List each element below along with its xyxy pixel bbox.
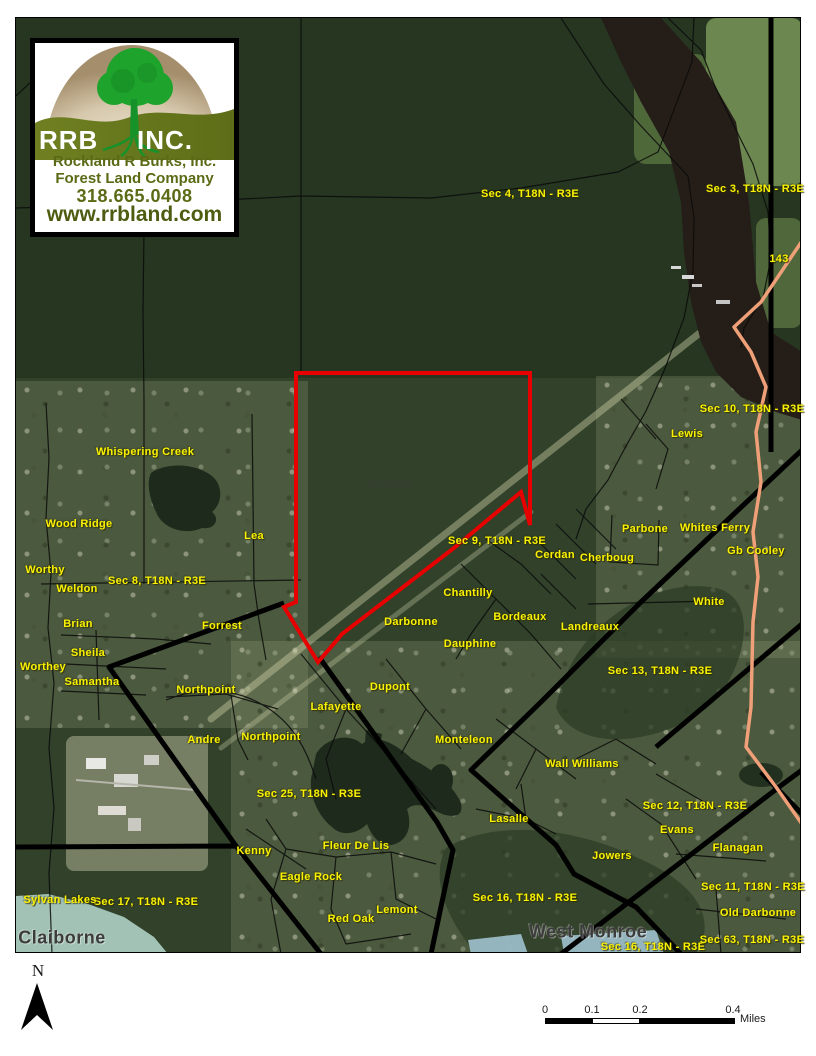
- logo-company-type: Forest Land Company: [35, 170, 234, 187]
- logo-abbr-rrb: RRB: [39, 125, 98, 156]
- scale-bar: 00.10.20.4 Miles: [540, 1004, 790, 1036]
- claiborne-water: [16, 894, 168, 953]
- north-arrow-glyph: [21, 983, 53, 1030]
- scale-bar-segments: [545, 1018, 735, 1024]
- property-boundary: [284, 373, 530, 662]
- wood-ridge-lake: [149, 465, 221, 531]
- forest-blobs: [440, 586, 744, 953]
- scale-segment-white: [592, 1018, 640, 1024]
- scale-segment-black: [545, 1018, 592, 1024]
- industrial-site: [66, 736, 208, 871]
- logo-company-name: Rockland R Burks, Inc.: [35, 153, 234, 170]
- scale-tick-label: 0.4: [725, 1004, 740, 1016]
- map-page: Sec 4, T18N - R3ESec 3, T18N - R3ESec 10…: [0, 0, 816, 1056]
- company-logo: RRB INC. Rockland R Burks, Inc. Forest L…: [30, 38, 239, 237]
- scale-unit: Miles: [740, 1013, 766, 1025]
- north-label: N: [32, 961, 44, 980]
- monteleon-pond: [429, 764, 453, 796]
- scale-tick-label: 0.2: [632, 1004, 647, 1016]
- scale-tick-label: 0.1: [584, 1004, 599, 1016]
- scale-segment-black: [640, 1018, 735, 1024]
- logo-abbr-inc: INC.: [137, 125, 193, 156]
- scale-tick-label: 0: [542, 1004, 548, 1016]
- north-arrow: N: [15, 958, 75, 1043]
- logo-website: www.rrbland.com: [35, 203, 234, 227]
